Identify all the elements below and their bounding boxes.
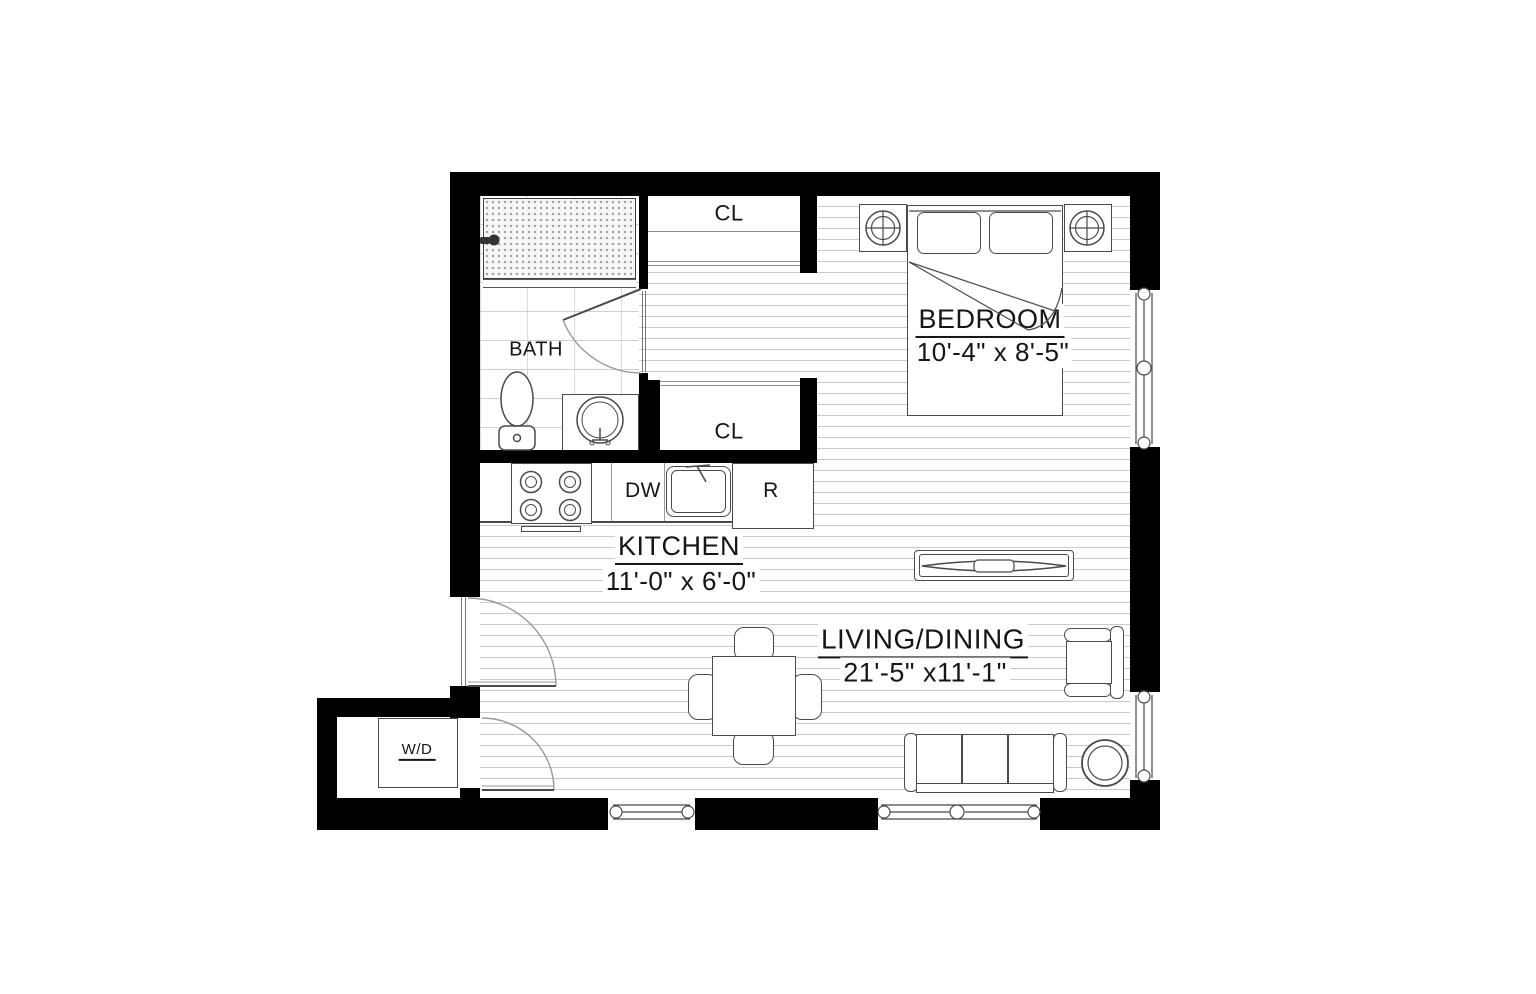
wall-bottom	[1040, 798, 1160, 830]
room-label-closet-bottom: CL	[711, 418, 746, 443]
sofa-cushion	[962, 734, 1008, 785]
bath-vanity	[562, 394, 639, 451]
appliance-label-refrigerator: R	[760, 479, 782, 503]
wall-stub	[460, 788, 480, 798]
armchair-seat	[1066, 641, 1112, 684]
kitchen-sink-basin	[671, 470, 726, 513]
sofa-seat-edge	[916, 783, 1054, 793]
sofa-cushion	[1008, 734, 1054, 785]
wall-right	[1130, 447, 1160, 692]
wall-right	[1130, 196, 1160, 290]
appliance-label-washer-dryer: W/D	[399, 741, 436, 761]
window-icon	[1136, 288, 1152, 449]
room-dimensions-kitchen: 11'-0" x 6'-0"	[603, 567, 760, 597]
appliance-label-dishwasher: DW	[622, 479, 664, 503]
wall-top	[450, 172, 1160, 196]
wall-closet-left	[639, 380, 660, 450]
room-dimensions-bedroom: 10'-4" x 8'-5"	[914, 338, 1072, 368]
sofa-arm	[1053, 733, 1067, 792]
dining-chair	[792, 674, 822, 720]
bath-door-jamb	[642, 291, 646, 372]
wall-bottom	[317, 798, 608, 830]
wall-closet-stub	[800, 378, 817, 450]
counter-divider	[664, 463, 665, 521]
tv-console-inner	[919, 554, 1069, 577]
room-dimensions-living-dining: 21'-5" x11'-1"	[840, 657, 1010, 688]
closet-top-front-line	[648, 265, 800, 266]
counter-divider	[611, 463, 612, 521]
stove-handle	[521, 526, 581, 532]
wall-laundry-left	[317, 717, 337, 830]
room-label-kitchen: KITCHEN	[615, 531, 743, 565]
armchair-arm	[1064, 683, 1112, 697]
closet-top-front-line	[648, 261, 800, 262]
sofa-cushion	[916, 734, 962, 785]
wall-bottom	[695, 798, 878, 830]
armchair-back	[1110, 626, 1124, 699]
pillow	[989, 212, 1053, 254]
wall-closet-stub	[800, 195, 817, 273]
pillow	[917, 212, 981, 254]
room-label-bath: BATH	[506, 339, 566, 362]
wall-stub	[453, 690, 480, 718]
armchair-arm	[1064, 628, 1112, 642]
shower-sliding-door	[483, 279, 636, 288]
wall-bath-partition	[639, 195, 648, 289]
floor-plan: BATH CL CL BEDROOM 10'-4" x 8'-5" KITCHE…	[0, 0, 1536, 994]
nightstand	[1064, 204, 1112, 252]
room-label-bedroom: BEDROOM	[915, 304, 1064, 338]
dining-table	[712, 656, 796, 736]
shower-stall	[483, 198, 636, 279]
closet-top-rod	[648, 231, 800, 232]
wall-kitchen	[480, 450, 817, 463]
window-icon	[610, 805, 694, 819]
closet-bottom-front-line	[652, 381, 800, 382]
window-icon	[878, 805, 1040, 819]
wall-right	[1130, 780, 1160, 798]
room-label-closet-top: CL	[711, 200, 746, 225]
entry-door-jamb	[461, 597, 466, 686]
closet-bottom-front-line	[652, 385, 800, 386]
nightstand	[859, 204, 907, 252]
wall-left	[450, 196, 480, 597]
room-label-living-dining: LIVING/DINING	[818, 623, 1028, 658]
dining-chair	[733, 731, 774, 765]
stove	[511, 463, 592, 524]
window-icon	[1136, 691, 1152, 782]
